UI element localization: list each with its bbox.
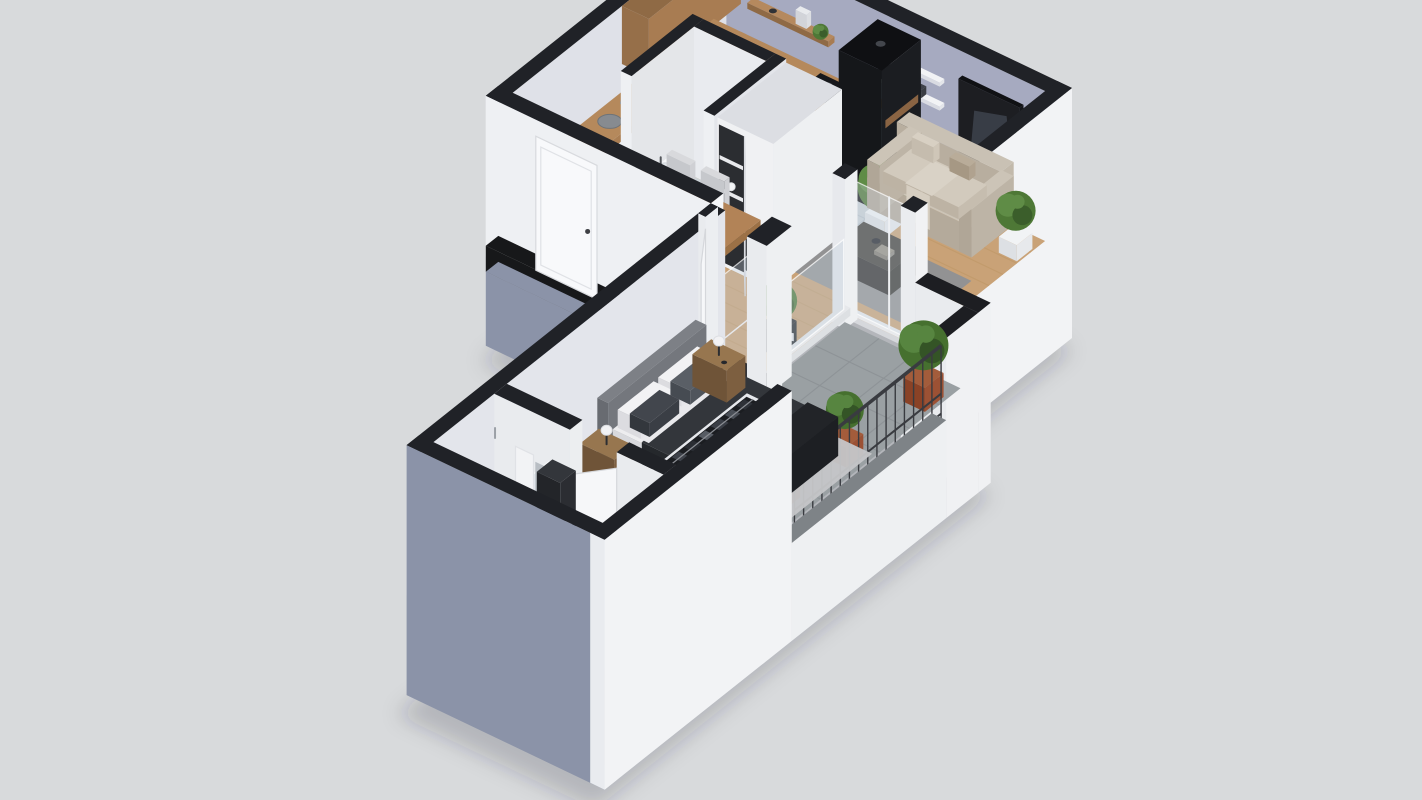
plant-sofa <box>996 191 1036 231</box>
shelf-vase <box>769 9 777 14</box>
hall-corner-pillar <box>747 217 792 396</box>
floor-plan-svg <box>0 0 1422 800</box>
nightstand-2-lamp <box>601 425 612 435</box>
nightstand-1-deco <box>721 361 727 365</box>
entrance-door <box>536 136 597 299</box>
apartment-floor-plan-3d <box>0 0 1422 800</box>
tall-cabinet-deco <box>876 41 886 47</box>
entrance-door-handle <box>585 229 590 234</box>
nightstand-1-lamp <box>713 336 724 346</box>
shelf-plant <box>813 24 829 40</box>
kitchen-sink <box>598 114 622 128</box>
